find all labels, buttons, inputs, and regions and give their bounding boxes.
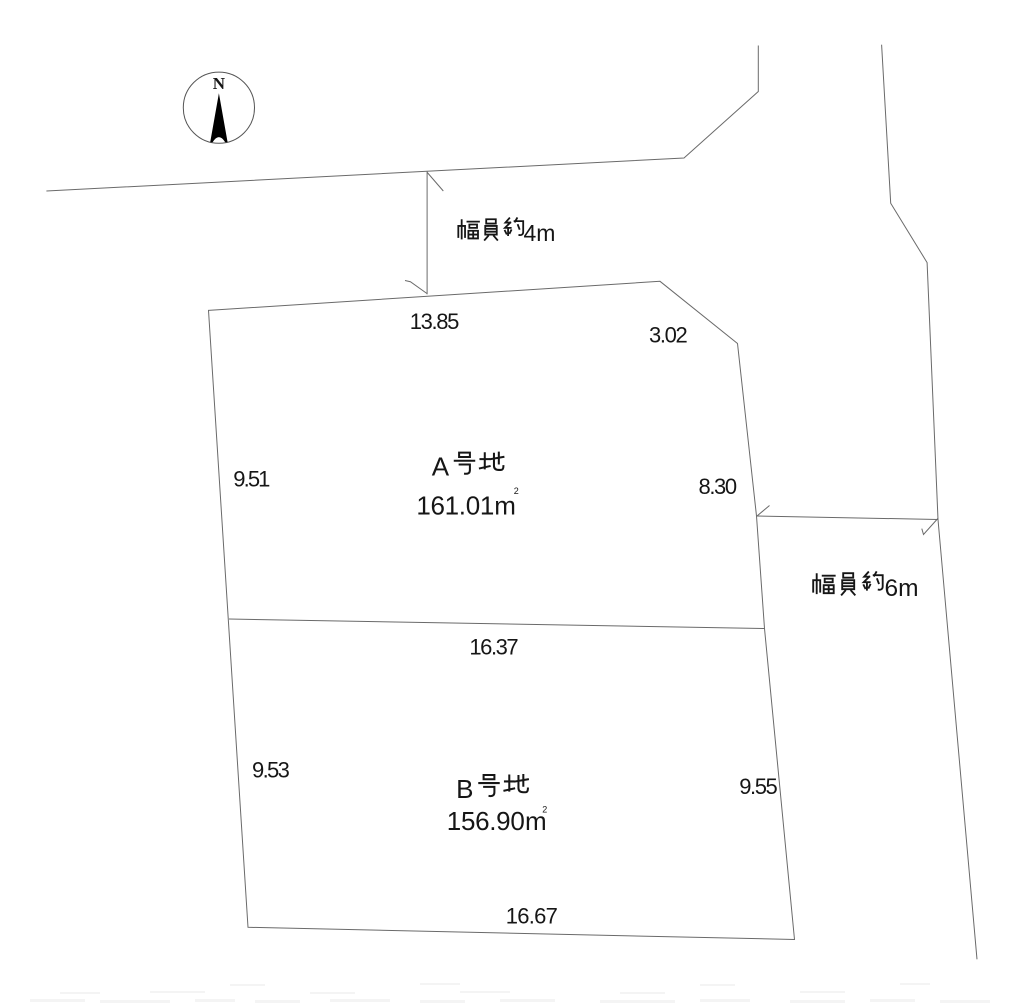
svg-text:3.02: 3.02: [649, 323, 688, 348]
svg-text:161.01: 161.01: [416, 491, 494, 521]
svg-text:6m: 6m: [885, 575, 919, 602]
svg-text:9.51: 9.51: [233, 466, 270, 491]
svg-text:16.67: 16.67: [506, 903, 558, 928]
svg-text:N: N: [213, 74, 226, 93]
svg-text:A: A: [432, 452, 450, 482]
svg-text:B: B: [456, 774, 473, 804]
svg-text:4m: 4m: [524, 220, 556, 246]
svg-text:m: m: [494, 491, 516, 521]
svg-text:2: 2: [542, 805, 547, 815]
svg-text:2: 2: [514, 486, 519, 496]
svg-text:156.90: 156.90: [447, 806, 525, 836]
svg-text:8.30: 8.30: [699, 474, 738, 499]
svg-text:13.85: 13.85: [410, 309, 460, 334]
svg-text:9.53: 9.53: [252, 758, 290, 783]
svg-text:16.37: 16.37: [469, 635, 518, 660]
svg-text:9.55: 9.55: [739, 774, 777, 799]
